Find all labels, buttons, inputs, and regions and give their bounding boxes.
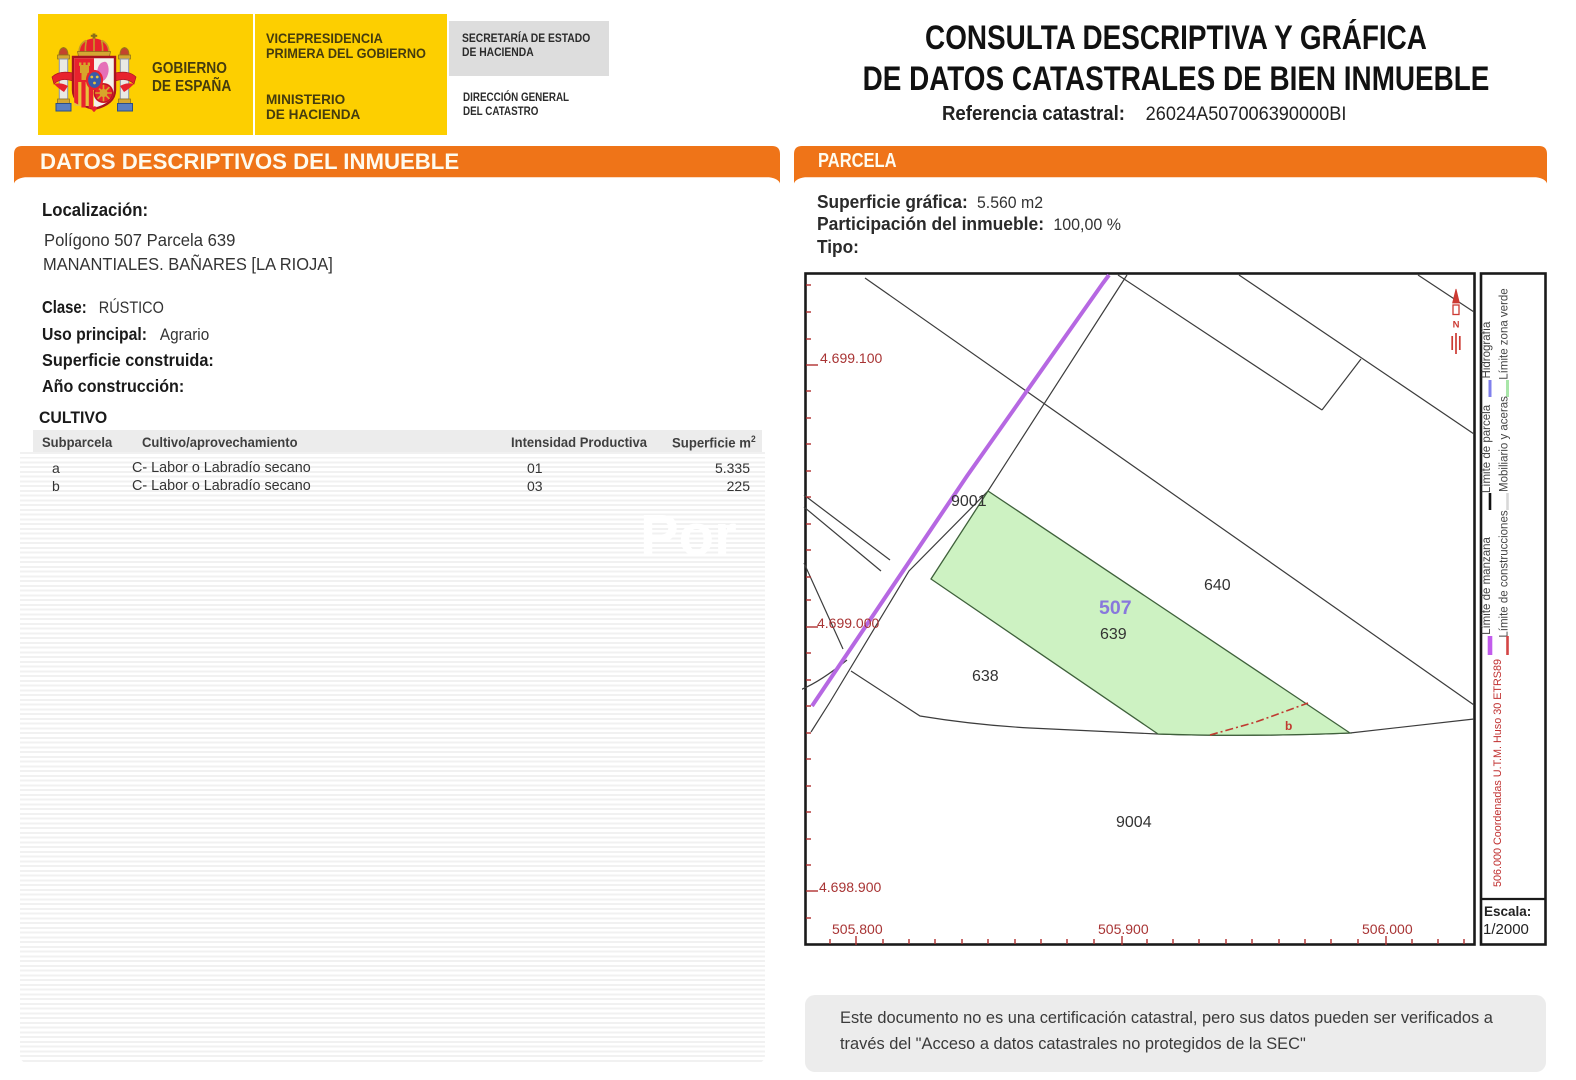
svg-text:Escala:: Escala: xyxy=(1484,904,1531,919)
svg-text:Límite de parcela: Límite de parcela xyxy=(1481,404,1493,493)
svg-text:640: 640 xyxy=(1204,577,1231,594)
svg-text:N: N xyxy=(1453,320,1460,331)
svg-text:4.699.000: 4.699.000 xyxy=(817,615,879,631)
svg-text:Mobiliario y aceras: Mobiliario y aceras xyxy=(1499,396,1511,492)
svg-text:507: 507 xyxy=(1099,597,1132,619)
svg-text:505.900: 505.900 xyxy=(1098,921,1149,937)
svg-text:1/2000: 1/2000 xyxy=(1483,921,1529,938)
svg-text:b: b xyxy=(1285,719,1292,733)
svg-text:506.000 Coordenadas U.T.M. Hus: 506.000 Coordenadas U.T.M. Huso 30 ETRS8… xyxy=(1492,659,1504,887)
svg-text:9001: 9001 xyxy=(951,493,987,510)
svg-text:505.800: 505.800 xyxy=(832,921,883,937)
svg-text:Límite zona verde: Límite zona verde xyxy=(1499,288,1511,379)
svg-text:506.000: 506.000 xyxy=(1362,921,1413,937)
svg-text:639: 639 xyxy=(1100,626,1127,643)
svg-text:4.698.900: 4.698.900 xyxy=(819,879,881,895)
svg-text:9004: 9004 xyxy=(1116,814,1152,831)
svg-text:Límite de manzana: Límite de manzana xyxy=(1481,536,1493,634)
svg-text:4.699.100: 4.699.100 xyxy=(820,350,882,366)
svg-text:Límite de construcciones: Límite de construcciones xyxy=(1499,510,1511,637)
svg-text:638: 638 xyxy=(972,668,999,685)
svg-text:Hidrografía: Hidrografía xyxy=(1481,321,1493,378)
